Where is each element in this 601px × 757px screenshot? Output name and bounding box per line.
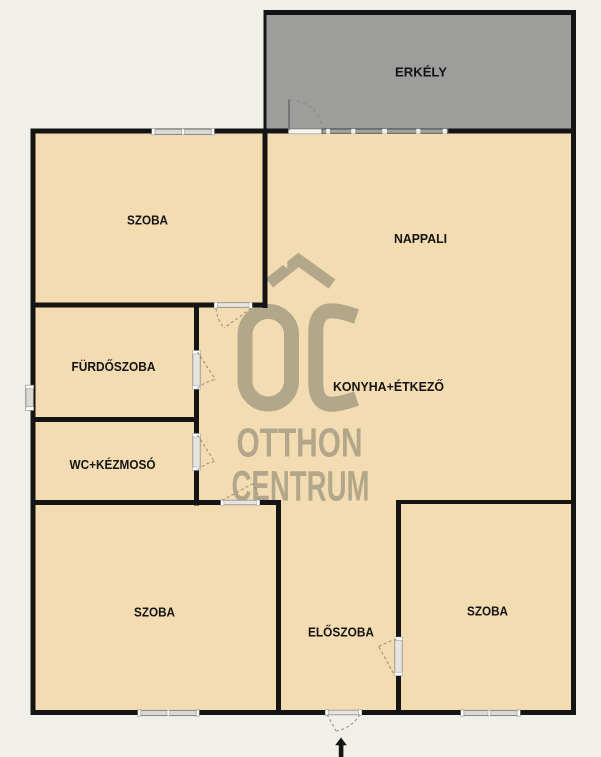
svg-text:OTTHON: OTTHON bbox=[237, 420, 363, 466]
svg-text:SZOBA: SZOBA bbox=[467, 604, 509, 619]
svg-text:ELŐSZOBA: ELŐSZOBA bbox=[308, 625, 375, 640]
svg-text:NAPPALI: NAPPALI bbox=[394, 231, 447, 246]
svg-text:SZOBA: SZOBA bbox=[134, 605, 176, 620]
svg-text:ERKÉLY: ERKÉLY bbox=[395, 65, 447, 80]
svg-text:KONYHA+ÉTKEZŐ: KONYHA+ÉTKEZŐ bbox=[333, 379, 444, 394]
svg-text:WC+KÉZMOSÓ: WC+KÉZMOSÓ bbox=[70, 457, 156, 472]
svg-text:SZOBA: SZOBA bbox=[127, 213, 169, 228]
svg-text:FÜRDŐSZOBA: FÜRDŐSZOBA bbox=[72, 359, 157, 374]
